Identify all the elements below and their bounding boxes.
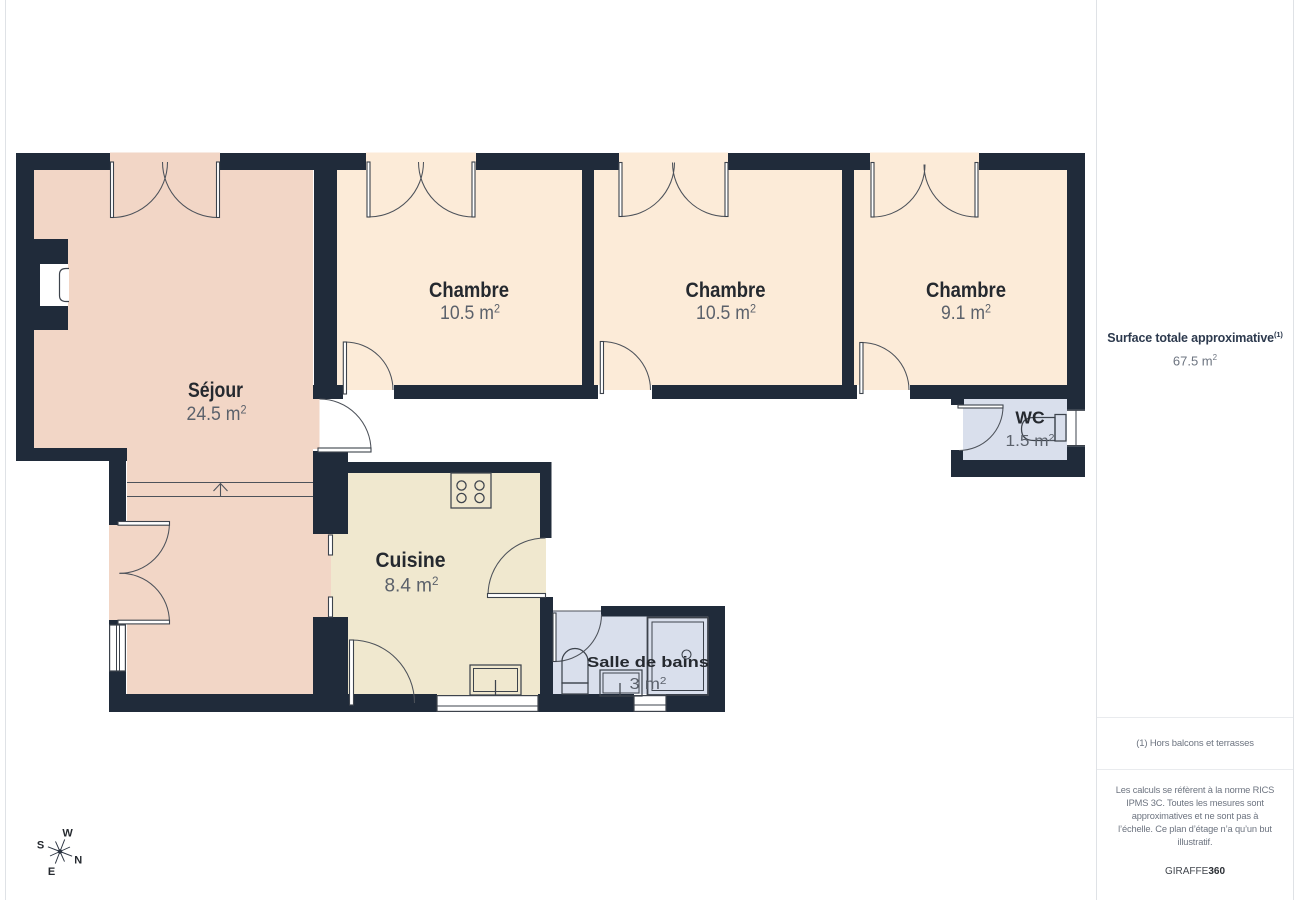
svg-text:Chambre: Chambre — [926, 278, 1006, 302]
svg-text:W: W — [62, 828, 73, 840]
svg-text:1.5 m2: 1.5 m2 — [1006, 433, 1055, 450]
svg-text:24.5 m2: 24.5 m2 — [187, 403, 247, 426]
svg-text:Salle de bains: Salle de bains — [587, 654, 709, 671]
svg-text:WC: WC — [1015, 408, 1045, 428]
svg-text:10.5 m2: 10.5 m2 — [696, 302, 756, 325]
svg-text:9.1 m2: 9.1 m2 — [941, 302, 991, 325]
svg-text:Chambre: Chambre — [429, 278, 509, 302]
svg-text:Cuisine: Cuisine — [376, 548, 446, 572]
svg-text:Séjour: Séjour — [188, 378, 244, 402]
svg-text:Chambre: Chambre — [686, 278, 766, 302]
svg-text:E: E — [48, 866, 55, 878]
svg-text:10.5 m2: 10.5 m2 — [440, 302, 500, 325]
svg-text:S: S — [37, 840, 44, 852]
svg-text:8.4 m2: 8.4 m2 — [385, 574, 439, 597]
svg-text:N: N — [74, 854, 82, 866]
